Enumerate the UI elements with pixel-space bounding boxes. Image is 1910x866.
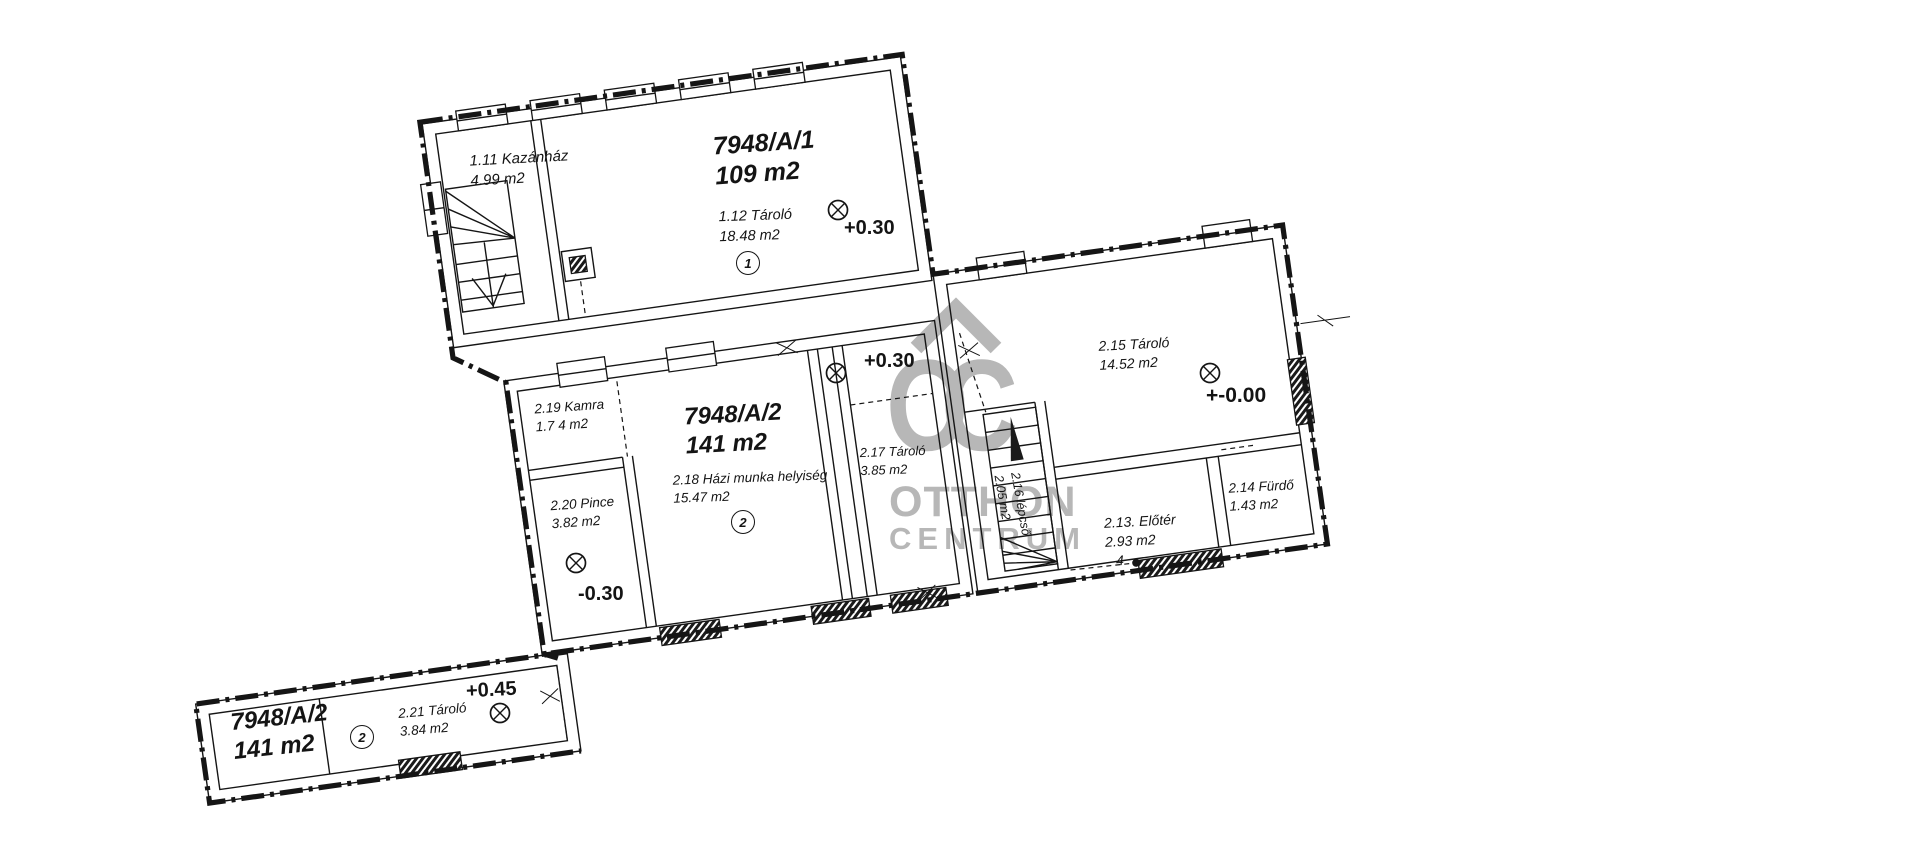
elevation-label-ground: +-0.00 bbox=[1206, 384, 1266, 408]
room-area: 3.85 m2 bbox=[860, 459, 926, 479]
room-area: 18.48 m2 bbox=[719, 225, 793, 247]
unit-badge-2: 2 bbox=[731, 510, 755, 534]
elevation-label-annex: +0.45 bbox=[465, 678, 517, 704]
parcel-area: 141 m2 bbox=[685, 427, 784, 461]
elevation-marker-icon bbox=[491, 704, 510, 723]
elevation-label-a1: +0.30 bbox=[844, 217, 895, 240]
room-area: 14.52 m2 bbox=[1099, 352, 1171, 375]
room-name: 2.15 Tároló bbox=[1098, 333, 1170, 356]
parcel-number: 7948/A/2 bbox=[684, 398, 783, 432]
room-label-217: 2.17 Tároló 3.85 m2 bbox=[859, 442, 926, 479]
room-label-218: 2.18 Házi munka helyiség 15.47 m2 bbox=[672, 466, 828, 508]
parcel-label-a2: 7948/A/2 141 m2 bbox=[684, 398, 784, 461]
elevation-label-corridor: +0.30 bbox=[864, 350, 915, 373]
room-label-214: 2.14 Fürdő 1.43 m2 bbox=[1228, 476, 1295, 516]
room-label-215: 2.15 Tároló 14.52 m2 bbox=[1098, 333, 1171, 374]
room-name: 2.14 Fürdő bbox=[1228, 476, 1294, 498]
unit-number: 2 bbox=[739, 515, 746, 530]
floorplan-image: OC OTTHON CENTRUM bbox=[0, 0, 1910, 866]
room-label-111: 1.11 Kazánház 4.99 m2 bbox=[469, 146, 570, 192]
room-area: 1.43 m2 bbox=[1229, 495, 1295, 517]
room-label-112: 1.12 Tároló 18.48 m2 bbox=[718, 206, 793, 248]
room-label-220: 2.20 Pince 3.82 m2 bbox=[550, 493, 616, 534]
elevation-marker-icon bbox=[827, 364, 846, 383]
elevation-marker-icon bbox=[567, 554, 586, 573]
room-name: 2.13. Előtér bbox=[1104, 510, 1176, 533]
room-label-219: 2.19 Kamra 1.7 4 m2 bbox=[534, 396, 606, 437]
elevation-label-cellar: -0.30 bbox=[578, 583, 624, 606]
unit-number: 1 bbox=[744, 256, 751, 271]
unit-number: 2 bbox=[358, 730, 365, 745]
parcel-label-a2-annex: 7948/A/2 141 m2 bbox=[229, 699, 332, 766]
parcel-label-a1: 7948/A/1 109 m2 bbox=[712, 125, 817, 192]
unit-badge-2-annex: 2 bbox=[350, 725, 374, 749]
room-label-221: 2.21 Tároló 3.84 m2 bbox=[398, 699, 469, 741]
room-label-213: 2.13. Előtér 2.93 m2 4 bbox=[1104, 510, 1178, 570]
elevation-marker-icon bbox=[1201, 364, 1220, 383]
room-note: 4 bbox=[1116, 548, 1179, 570]
room-name: 2.17 Tároló bbox=[859, 442, 925, 462]
unit-badge-1: 1 bbox=[736, 251, 760, 275]
room-name: 1.12 Tároló bbox=[718, 206, 792, 228]
